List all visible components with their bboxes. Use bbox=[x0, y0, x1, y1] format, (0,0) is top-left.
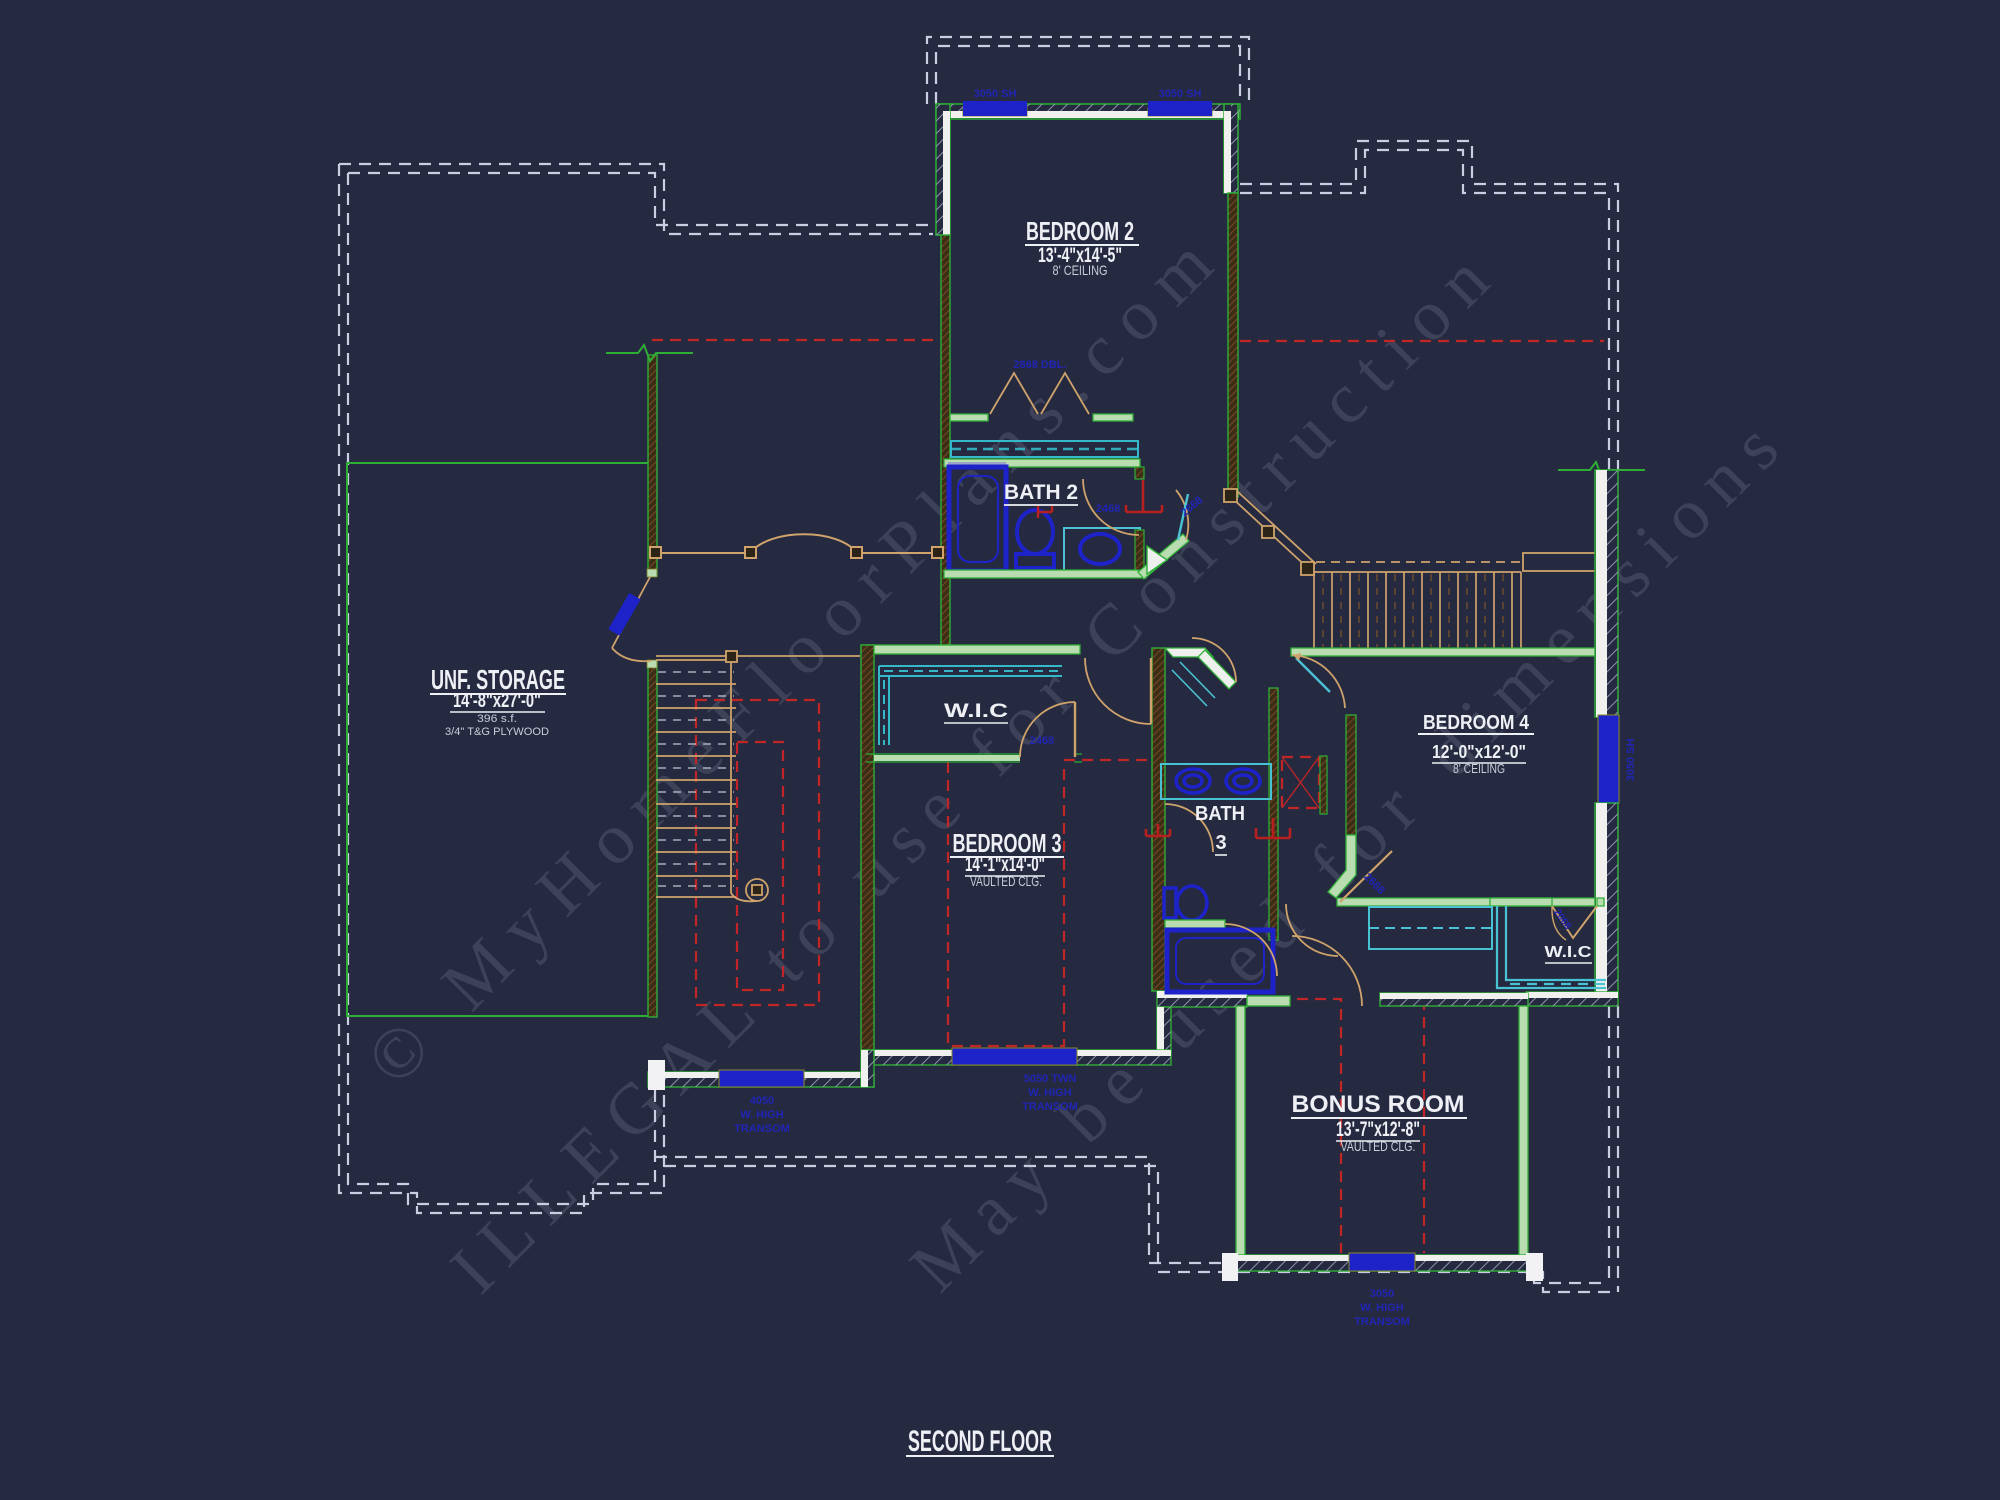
svg-text:3050 SH: 3050 SH bbox=[1159, 88, 1202, 100]
svg-text:W. HIGH: W. HIGH bbox=[1360, 1302, 1403, 1314]
svg-text:SECOND FLOOR: SECOND FLOOR bbox=[908, 1425, 1052, 1458]
svg-text:8' CEILING: 8' CEILING bbox=[1453, 761, 1505, 776]
svg-text:5050 TWN: 5050 TWN bbox=[1024, 1073, 1077, 1085]
svg-text:W. HIGH: W. HIGH bbox=[1028, 1087, 1071, 1099]
svg-text:W.I.C: W.I.C bbox=[1545, 944, 1593, 961]
svg-text:BATH: BATH bbox=[1195, 803, 1245, 825]
svg-text:W.I.C: W.I.C bbox=[944, 701, 1008, 722]
svg-text:TRANSOM: TRANSOM bbox=[1022, 1101, 1078, 1113]
svg-text:4050: 4050 bbox=[750, 1095, 774, 1107]
svg-text:3/4" T&G PLYWOOD: 3/4" T&G PLYWOOD bbox=[445, 726, 549, 738]
svg-text:8' CEILING: 8' CEILING bbox=[1053, 262, 1108, 278]
svg-text:W. HIGH: W. HIGH bbox=[740, 1109, 783, 1121]
svg-text:TRANSOM: TRANSOM bbox=[734, 1123, 790, 1135]
svg-text:14'-8"x27'-0": 14'-8"x27'-0" bbox=[453, 690, 541, 712]
svg-text:3050 SH: 3050 SH bbox=[974, 88, 1017, 100]
svg-text:3: 3 bbox=[1215, 832, 1226, 854]
svg-text:3050 SH: 3050 SH bbox=[1625, 739, 1637, 782]
svg-text:BONUS ROOM: BONUS ROOM bbox=[1292, 1091, 1465, 1118]
svg-text:BATH 2: BATH 2 bbox=[1004, 481, 1078, 504]
svg-text:BEDROOM 4: BEDROOM 4 bbox=[1423, 712, 1530, 734]
svg-text:2468: 2468 bbox=[1096, 503, 1120, 515]
svg-text:BEDROOM 2: BEDROOM 2 bbox=[1026, 216, 1134, 246]
svg-text:VAULTED CLG.: VAULTED CLG. bbox=[1341, 1138, 1416, 1154]
svg-text:396 s.f.: 396 s.f. bbox=[477, 713, 517, 725]
svg-text:TRANSOM: TRANSOM bbox=[1354, 1316, 1410, 1328]
svg-text:2868 DBL.: 2868 DBL. bbox=[1013, 359, 1066, 371]
svg-text:12'-0"x12'-0": 12'-0"x12'-0" bbox=[1432, 742, 1526, 762]
svg-text:VAULTED CLG.: VAULTED CLG. bbox=[970, 873, 1042, 889]
svg-text:3050: 3050 bbox=[1370, 1288, 1394, 1300]
svg-text:2068: 2068 bbox=[1551, 907, 1573, 932]
svg-text:2468: 2468 bbox=[1030, 735, 1054, 747]
